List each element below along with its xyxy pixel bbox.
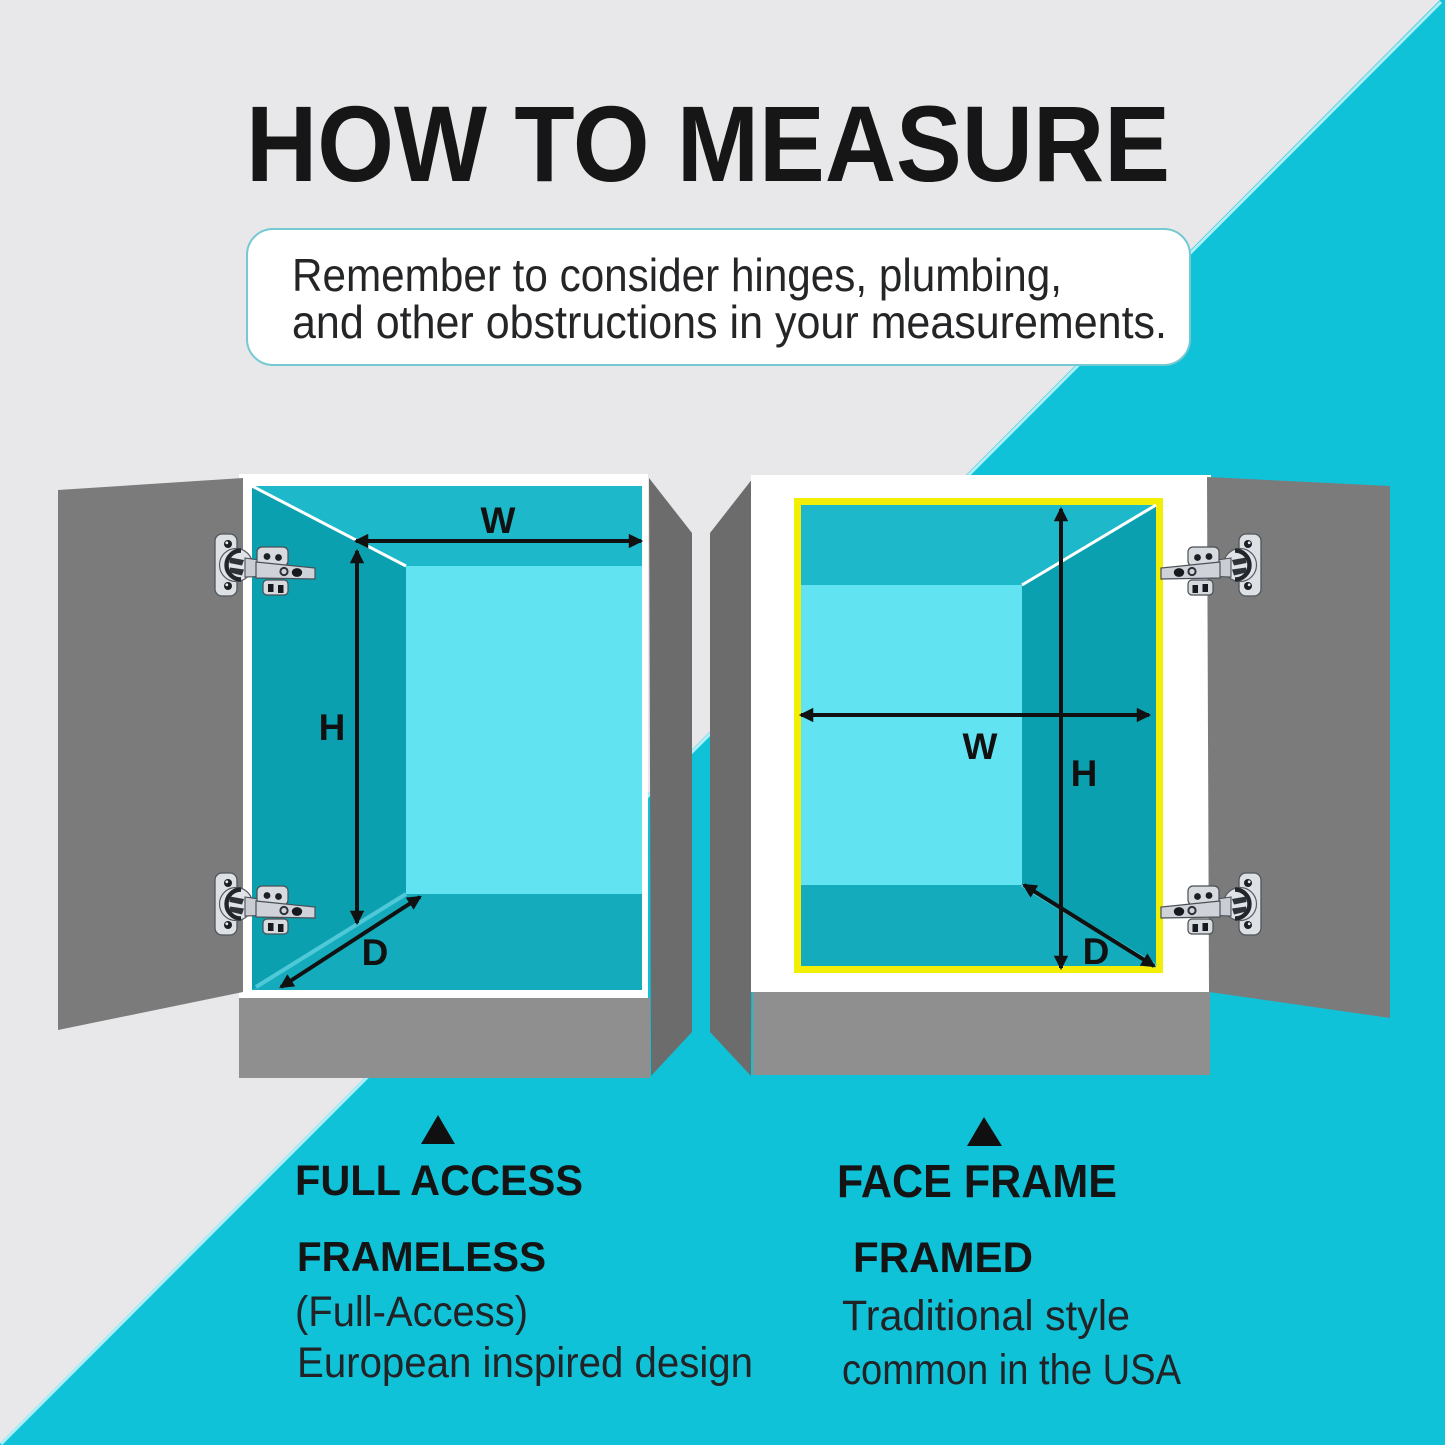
svg-text:H: H xyxy=(319,707,346,748)
svg-text:Traditional style: Traditional style xyxy=(842,1292,1130,1340)
svg-text:Remember to consider hinges, p: Remember to consider hinges, plumbing, xyxy=(292,249,1062,301)
svg-text:and other obstructions in your: and other obstructions in your measureme… xyxy=(292,296,1167,348)
svg-text:(Full-Access): (Full-Access) xyxy=(295,1288,528,1336)
svg-text:W: W xyxy=(481,500,516,541)
svg-text:European inspired design: European inspired design xyxy=(297,1339,753,1387)
svg-text:D: D xyxy=(1083,931,1110,972)
svg-text:FACE FRAME: FACE FRAME xyxy=(837,1155,1117,1207)
svg-text:FULL ACCESS: FULL ACCESS xyxy=(295,1157,583,1205)
svg-text:FRAMELESS: FRAMELESS xyxy=(297,1233,546,1280)
svg-text:D: D xyxy=(362,932,389,973)
svg-text:common in the USA: common in the USA xyxy=(842,1346,1181,1394)
svg-text:FRAMED: FRAMED xyxy=(853,1234,1033,1282)
svg-text:W: W xyxy=(963,726,998,767)
svg-text:H: H xyxy=(1071,753,1098,794)
svg-text:HOW TO MEASURE: HOW TO MEASURE xyxy=(246,83,1170,204)
